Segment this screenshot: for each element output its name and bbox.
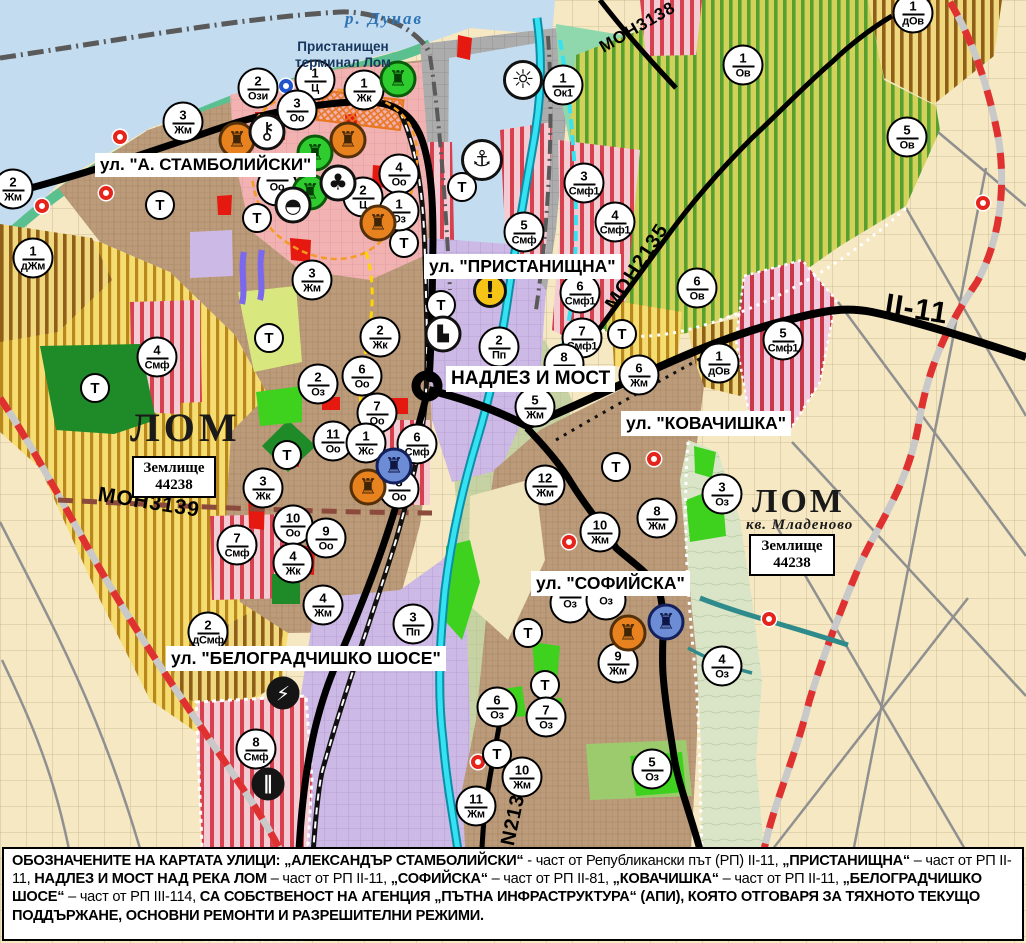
map-canvas [0,0,1026,943]
map-page: 2 Жм 1 дЖм 3 Жм 2 Ози 1 Ц 3 Оо 1 Жк 4 Оо… [0,0,1026,943]
caption-segment: „СОФИЙСКА“ [391,871,488,887]
caption-segment: – част от РП II-11, [267,871,391,887]
map-caption: ОБОЗНАЧЕНИТЕ НА КАРТАТА УЛИЦИ: „АЛЕКСАНД… [2,847,1024,941]
caption-segment: – част от РП II-11, [719,871,843,887]
caption-text: ОБОЗНАЧЕНИТЕ НА КАРТАТА УЛИЦИ: „АЛЕКСАНД… [12,852,1014,925]
map-zones [0,0,1026,943]
port-terminal-label: Пристанищен терминал Лом [287,39,399,71]
caption-segment: „ПРИСТАНИЩНА“ [782,853,910,869]
district-label: кв. Младеново [746,517,853,534]
caption-segment: – част от РП II-81, [488,871,613,887]
river-label: р. Дунав [345,9,423,29]
caption-segment: „КОВАЧИШКА“ [613,871,719,887]
caption-segment: - част от Републикански път (РП) II-11, [523,853,782,869]
caption-segment: ОБОЗНАЧЕНИТЕ НА КАРТАТА УЛИЦИ: „АЛЕКСАНД… [12,853,523,869]
caption-segment: – част от РП III-114, [64,889,199,905]
caption-segment: НАДЛЕЗ И МОСТ НАД РЕКА ЛОМ [34,871,267,887]
